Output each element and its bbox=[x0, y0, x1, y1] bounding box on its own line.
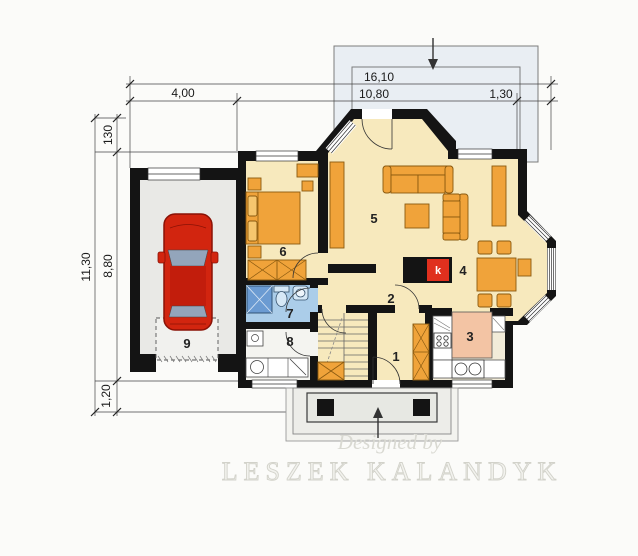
side-table bbox=[518, 259, 531, 276]
coffee-table bbox=[405, 204, 429, 228]
dining-bay-window-east bbox=[550, 248, 554, 290]
wall-cabinet bbox=[330, 162, 344, 248]
nightstand bbox=[248, 246, 261, 258]
car-mirror-left bbox=[158, 252, 165, 263]
room-label-4: 4 bbox=[459, 263, 467, 278]
room-label-5: 5 bbox=[370, 211, 377, 226]
fireplace-label: k bbox=[435, 265, 442, 277]
watermark: Designed by LESZEK KALANDYK bbox=[222, 430, 563, 486]
stairs-storage-cabinet bbox=[318, 362, 344, 380]
pillow bbox=[248, 221, 257, 241]
dim-left-top: 130 bbox=[101, 125, 115, 145]
floor-plan-canvas: 16,10 4,00 10,80 1,30 11,30 130 8,80 1,2… bbox=[0, 0, 638, 556]
car bbox=[158, 214, 218, 330]
dim-top-total: 16,10 bbox=[364, 70, 394, 84]
chair bbox=[478, 241, 492, 254]
watermark-name: LESZEK KALANDYK bbox=[222, 457, 563, 486]
chair bbox=[478, 294, 492, 307]
room-label-1: 1 bbox=[392, 349, 399, 364]
porch-column bbox=[317, 399, 334, 416]
utility-window bbox=[252, 380, 297, 388]
sofa-two-seat bbox=[443, 194, 468, 240]
room-label-2: 2 bbox=[387, 291, 394, 306]
room-label-6: 6 bbox=[279, 244, 286, 259]
stove bbox=[434, 333, 451, 348]
kitchen-window bbox=[452, 380, 492, 388]
watermark-script: Designed by bbox=[337, 430, 443, 454]
dresser bbox=[297, 164, 318, 177]
fireplace: k bbox=[403, 257, 452, 283]
hall-wardrobe bbox=[413, 324, 429, 380]
kitchen-sink bbox=[452, 360, 484, 378]
chair bbox=[497, 241, 511, 254]
sofa-three-seat bbox=[383, 166, 453, 193]
dining-table bbox=[477, 258, 516, 291]
stool bbox=[302, 181, 313, 191]
nightstand bbox=[248, 178, 261, 190]
room-label-3: 3 bbox=[466, 329, 473, 344]
dim-top-left: 4,00 bbox=[171, 86, 195, 100]
dim-left-total: 11,30 bbox=[79, 252, 93, 281]
living-window bbox=[458, 149, 492, 159]
porch-column bbox=[413, 399, 430, 416]
car-mirror-right bbox=[211, 252, 218, 263]
dim-top-mid: 10,80 bbox=[359, 87, 389, 101]
chair bbox=[497, 294, 511, 307]
room-label-8: 8 bbox=[286, 334, 293, 349]
bedroom-window bbox=[256, 151, 298, 161]
car-rear-window bbox=[169, 306, 207, 317]
pillow bbox=[248, 196, 257, 216]
tv-cabinet bbox=[492, 166, 506, 226]
room-label-9: 9 bbox=[183, 336, 190, 351]
room-label-7: 7 bbox=[286, 306, 293, 321]
floor-plan-page: 16,10 4,00 10,80 1,30 11,30 130 8,80 1,2… bbox=[0, 0, 638, 556]
dim-top-right: 1,30 bbox=[489, 87, 513, 101]
dim-left-mid: 8,80 bbox=[101, 254, 115, 278]
bedroom-wardrobe bbox=[248, 260, 306, 280]
dim-left-bottom: 1,20 bbox=[99, 384, 113, 408]
boiler bbox=[247, 331, 263, 346]
car-windshield bbox=[168, 250, 208, 266]
